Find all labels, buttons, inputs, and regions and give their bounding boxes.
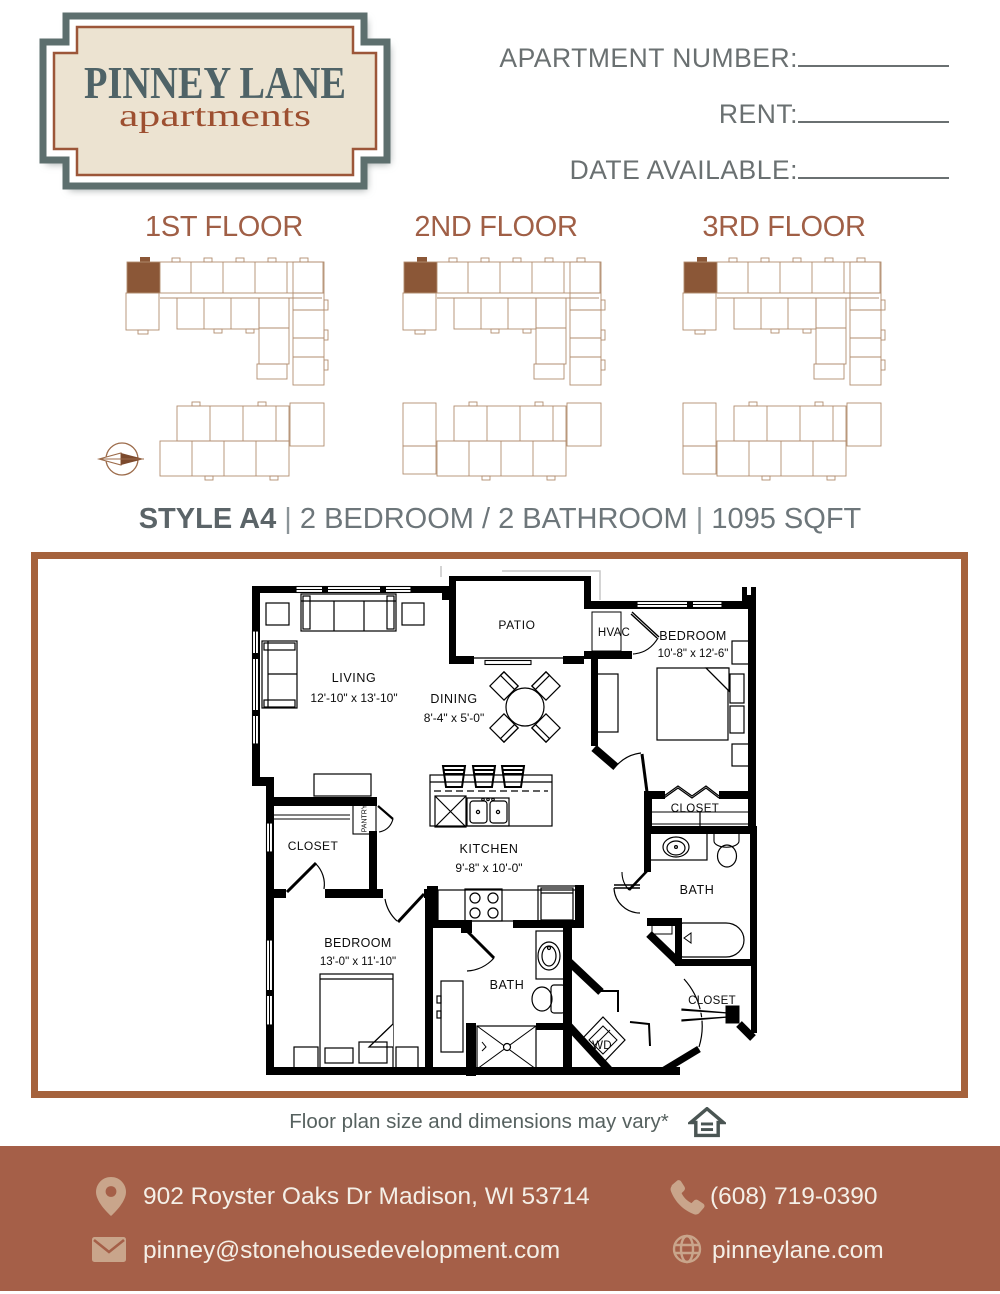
svg-text:BEDROOM: BEDROOM	[324, 936, 391, 950]
svg-text:(608) 719-0390: (608) 719-0390	[710, 1183, 878, 1210]
svg-text:CLOSET: CLOSET	[688, 995, 736, 1007]
svg-text:902 Royster Oaks Dr Madison, W: 902 Royster Oaks Dr Madison, WI 53714	[143, 1183, 590, 1210]
svg-text:PATIO: PATIO	[498, 618, 535, 632]
svg-text:LIVING: LIVING	[332, 671, 377, 685]
svg-text:BATH: BATH	[490, 978, 525, 992]
svg-text:BATH: BATH	[680, 883, 715, 897]
svg-text:CLOSET: CLOSET	[671, 803, 719, 815]
svg-text:PANTRY: PANTRY	[362, 804, 369, 832]
svg-text:pinney@stonehousedevelopment.c: pinney@stonehousedevelopment.com	[143, 1237, 560, 1264]
svg-text:12'-10" x 13'-10": 12'-10" x 13'-10"	[310, 691, 397, 705]
svg-text:13'-0" x 11'-10": 13'-0" x 11'-10"	[320, 956, 396, 968]
svg-text:HVAC: HVAC	[598, 627, 630, 639]
svg-text:KITCHEN: KITCHEN	[459, 842, 518, 856]
svg-text:9'-8" x 10'-0": 9'-8" x 10'-0"	[455, 861, 522, 875]
svg-text:8'-4" x 5'-0": 8'-4" x 5'-0"	[424, 711, 484, 725]
svg-text:10'-8" x 12'-6": 10'-8" x 12'-6"	[658, 648, 729, 660]
svg-text:CLOSET: CLOSET	[288, 839, 339, 853]
svg-text:WD: WD	[592, 1040, 612, 1052]
svg-text:BEDROOM: BEDROOM	[659, 629, 726, 643]
svg-text:pinneylane.com: pinneylane.com	[712, 1237, 884, 1264]
svg-text:DINING: DINING	[430, 692, 477, 706]
svg-text:apartments: apartments	[119, 97, 311, 133]
